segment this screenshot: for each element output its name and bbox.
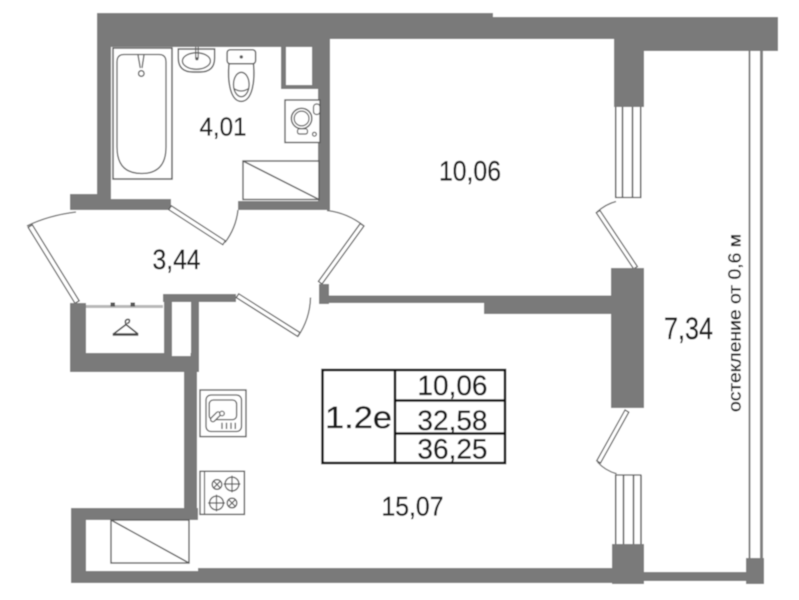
svg-text:10,06: 10,06 bbox=[439, 156, 501, 187]
svg-text:10,06: 10,06 bbox=[417, 370, 487, 401]
svg-text:4,01: 4,01 bbox=[200, 112, 247, 142]
svg-text:остекление от 0,6 м: остекление от 0,6 м bbox=[725, 234, 745, 412]
svg-text:7,34: 7,34 bbox=[664, 311, 713, 346]
svg-text:15,07: 15,07 bbox=[382, 492, 444, 522]
svg-text:32,58: 32,58 bbox=[417, 405, 487, 436]
svg-text:36,25: 36,25 bbox=[417, 434, 487, 465]
svg-text:1.2е: 1.2е bbox=[325, 400, 392, 435]
svg-text:3,44: 3,44 bbox=[153, 244, 201, 275]
